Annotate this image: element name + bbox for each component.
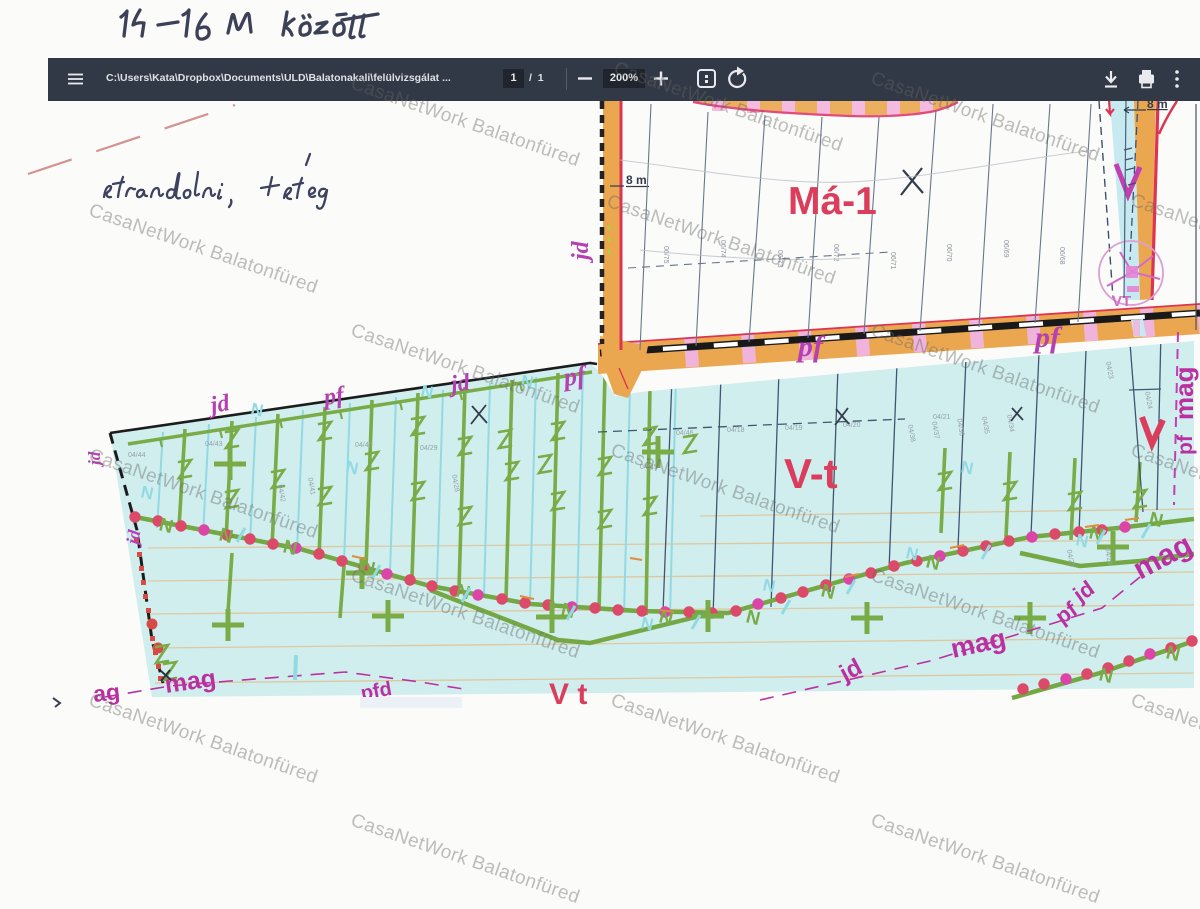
svg-text:8 m: 8 m bbox=[626, 173, 647, 187]
svg-text:jd: jd bbox=[568, 240, 594, 264]
svg-text:04/40: 04/40 bbox=[355, 442, 373, 449]
svg-text:V-t: V-t bbox=[784, 450, 838, 497]
svg-text:04/44: 04/44 bbox=[128, 452, 146, 459]
svg-text:Má-1: Má-1 bbox=[788, 180, 877, 223]
svg-text:04/29: 04/29 bbox=[420, 445, 438, 452]
svg-text:04/20: 04/20 bbox=[843, 422, 861, 429]
svg-text:pf: pf bbox=[1174, 434, 1197, 455]
svg-text:VT: VT bbox=[1112, 293, 1131, 310]
svg-text:04/46: 04/46 bbox=[676, 430, 694, 437]
svg-text:06/74: 06/74 bbox=[719, 240, 726, 258]
svg-text:ag: ag bbox=[92, 678, 121, 707]
svg-text:04/45: 04/45 bbox=[640, 464, 658, 471]
svg-text:jd: jd bbox=[85, 451, 104, 468]
svg-text:04/18: 04/18 bbox=[727, 427, 745, 434]
svg-text:04/43: 04/43 bbox=[205, 441, 223, 448]
svg-text:pf: pf bbox=[320, 382, 347, 411]
svg-text:06/69: 06/69 bbox=[1002, 240, 1009, 258]
svg-text:04/21: 04/21 bbox=[933, 414, 951, 421]
svg-text:V t: V t bbox=[549, 678, 587, 711]
svg-text:pf: pf bbox=[1032, 321, 1063, 354]
svg-text:pf: pf bbox=[795, 330, 826, 363]
svg-text:jd: jd bbox=[205, 390, 233, 420]
svg-text:mag: mag bbox=[1169, 367, 1199, 420]
svg-text:06/71: 06/71 bbox=[889, 252, 896, 270]
svg-text:06/70: 06/70 bbox=[945, 244, 952, 262]
svg-text:06/68: 06/68 bbox=[1058, 247, 1065, 265]
svg-text:04/19: 04/19 bbox=[785, 425, 803, 432]
svg-text:06/75: 06/75 bbox=[662, 246, 669, 264]
